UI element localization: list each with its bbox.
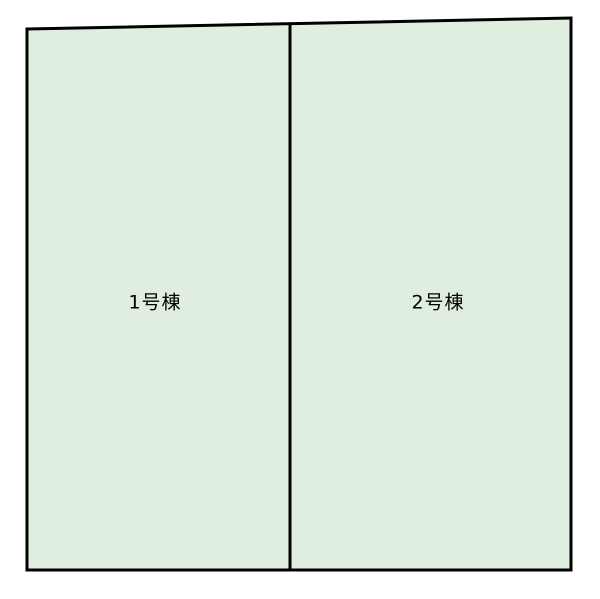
site-plan-drawing (0, 0, 600, 599)
parcel-label-2: 2号棟 (411, 294, 464, 313)
parcel-label-1: 1号棟 (128, 294, 181, 313)
site-outline (27, 18, 571, 570)
site-plan: 1号棟 2号棟 (0, 0, 600, 599)
